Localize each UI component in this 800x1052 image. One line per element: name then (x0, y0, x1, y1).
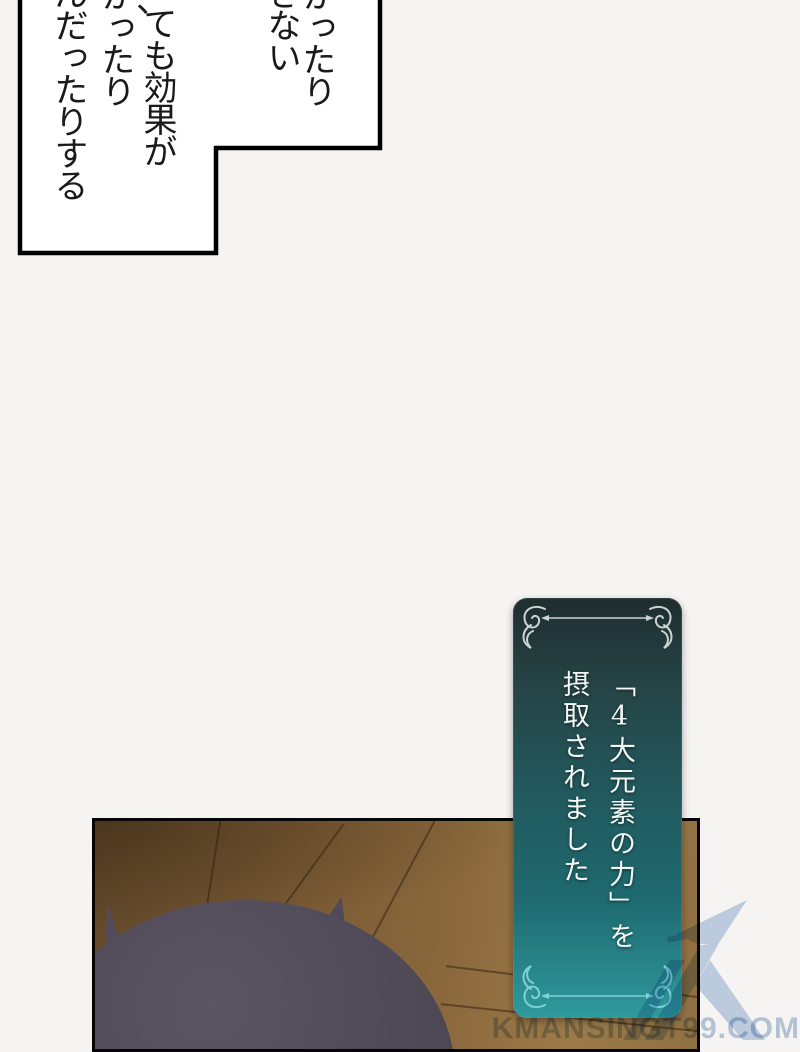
watermark-text: KMANSINGT99.COM (492, 1012, 800, 1046)
speech-bubble-text: かったり きない 、 ても効果が かったり んだったりする (0, 0, 400, 270)
flourish-ornament-top-icon (513, 601, 682, 651)
bubble-text-column: かったり (98, 0, 132, 106)
bubble-text-column: んだったりする (51, 0, 85, 200)
manga-page: かったり きない 、 ても効果が かったり んだったりする (0, 0, 800, 1052)
bubble-text-column: かったり (299, 0, 333, 106)
banner-text-line2: 摂取されました (560, 670, 587, 887)
figure-head (92, 900, 455, 1052)
bubble-text-column: きない (264, 0, 298, 72)
wood-seam (206, 818, 222, 907)
bubble-text-column: ても効果が (140, 6, 174, 166)
